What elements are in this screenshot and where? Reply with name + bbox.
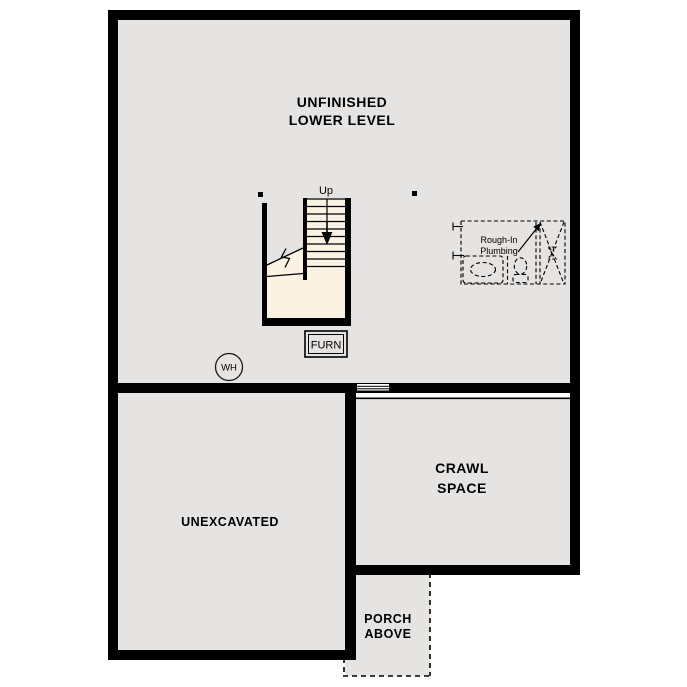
porch-label-line1: PORCH [364,612,412,626]
hatch-line [357,386,389,387]
rough-in-label-line1: Rough-In [480,235,517,245]
post-dot [258,192,263,197]
furnace-label: FURN [311,340,342,352]
stairwell-wall-left [262,203,267,326]
porch-label-line2: ABOVE [365,627,412,641]
floor-plan-svg: FURN WH UNFINISHED LOWER LEVEL Up Rough-… [0,0,687,687]
wall-unexcavated-right [345,383,356,660]
wall-crawl-bottom [345,565,580,575]
crawl-space-gap [352,393,570,398]
crawl-space-label-line2: SPACE [437,480,487,496]
crawl-access-hatch [357,384,389,391]
lower-level-label-line1: UNFINISHED [297,94,388,110]
crawl-space-room [345,383,580,575]
rough-in-label-line2: Plumbing [480,246,518,256]
post-dot [412,191,417,196]
crawl-space-edge-line [352,398,570,400]
wall-left [108,10,118,660]
wall-divider [108,383,580,393]
wall-top [108,10,580,20]
lower-level-label-line2: LOWER LEVEL [289,112,396,128]
hatch-line [357,388,389,389]
wall-right [570,10,580,575]
wall-unexcavated-bottom [108,650,356,660]
stair-rail-left [303,198,307,280]
hatch-body [357,384,389,391]
water-heater-label: WH [221,363,237,374]
furnace-symbol: FURN [305,331,347,357]
stairwell-wall-right [345,198,351,326]
stairwell-wall-bottom [262,318,351,326]
unexcavated-label: UNEXCAVATED [181,515,279,529]
up-label: Up [319,185,333,197]
floor-plan: FURN WH UNFINISHED LOWER LEVEL Up Rough-… [0,0,687,687]
crawl-space-label-line1: CRAWL [435,460,489,476]
